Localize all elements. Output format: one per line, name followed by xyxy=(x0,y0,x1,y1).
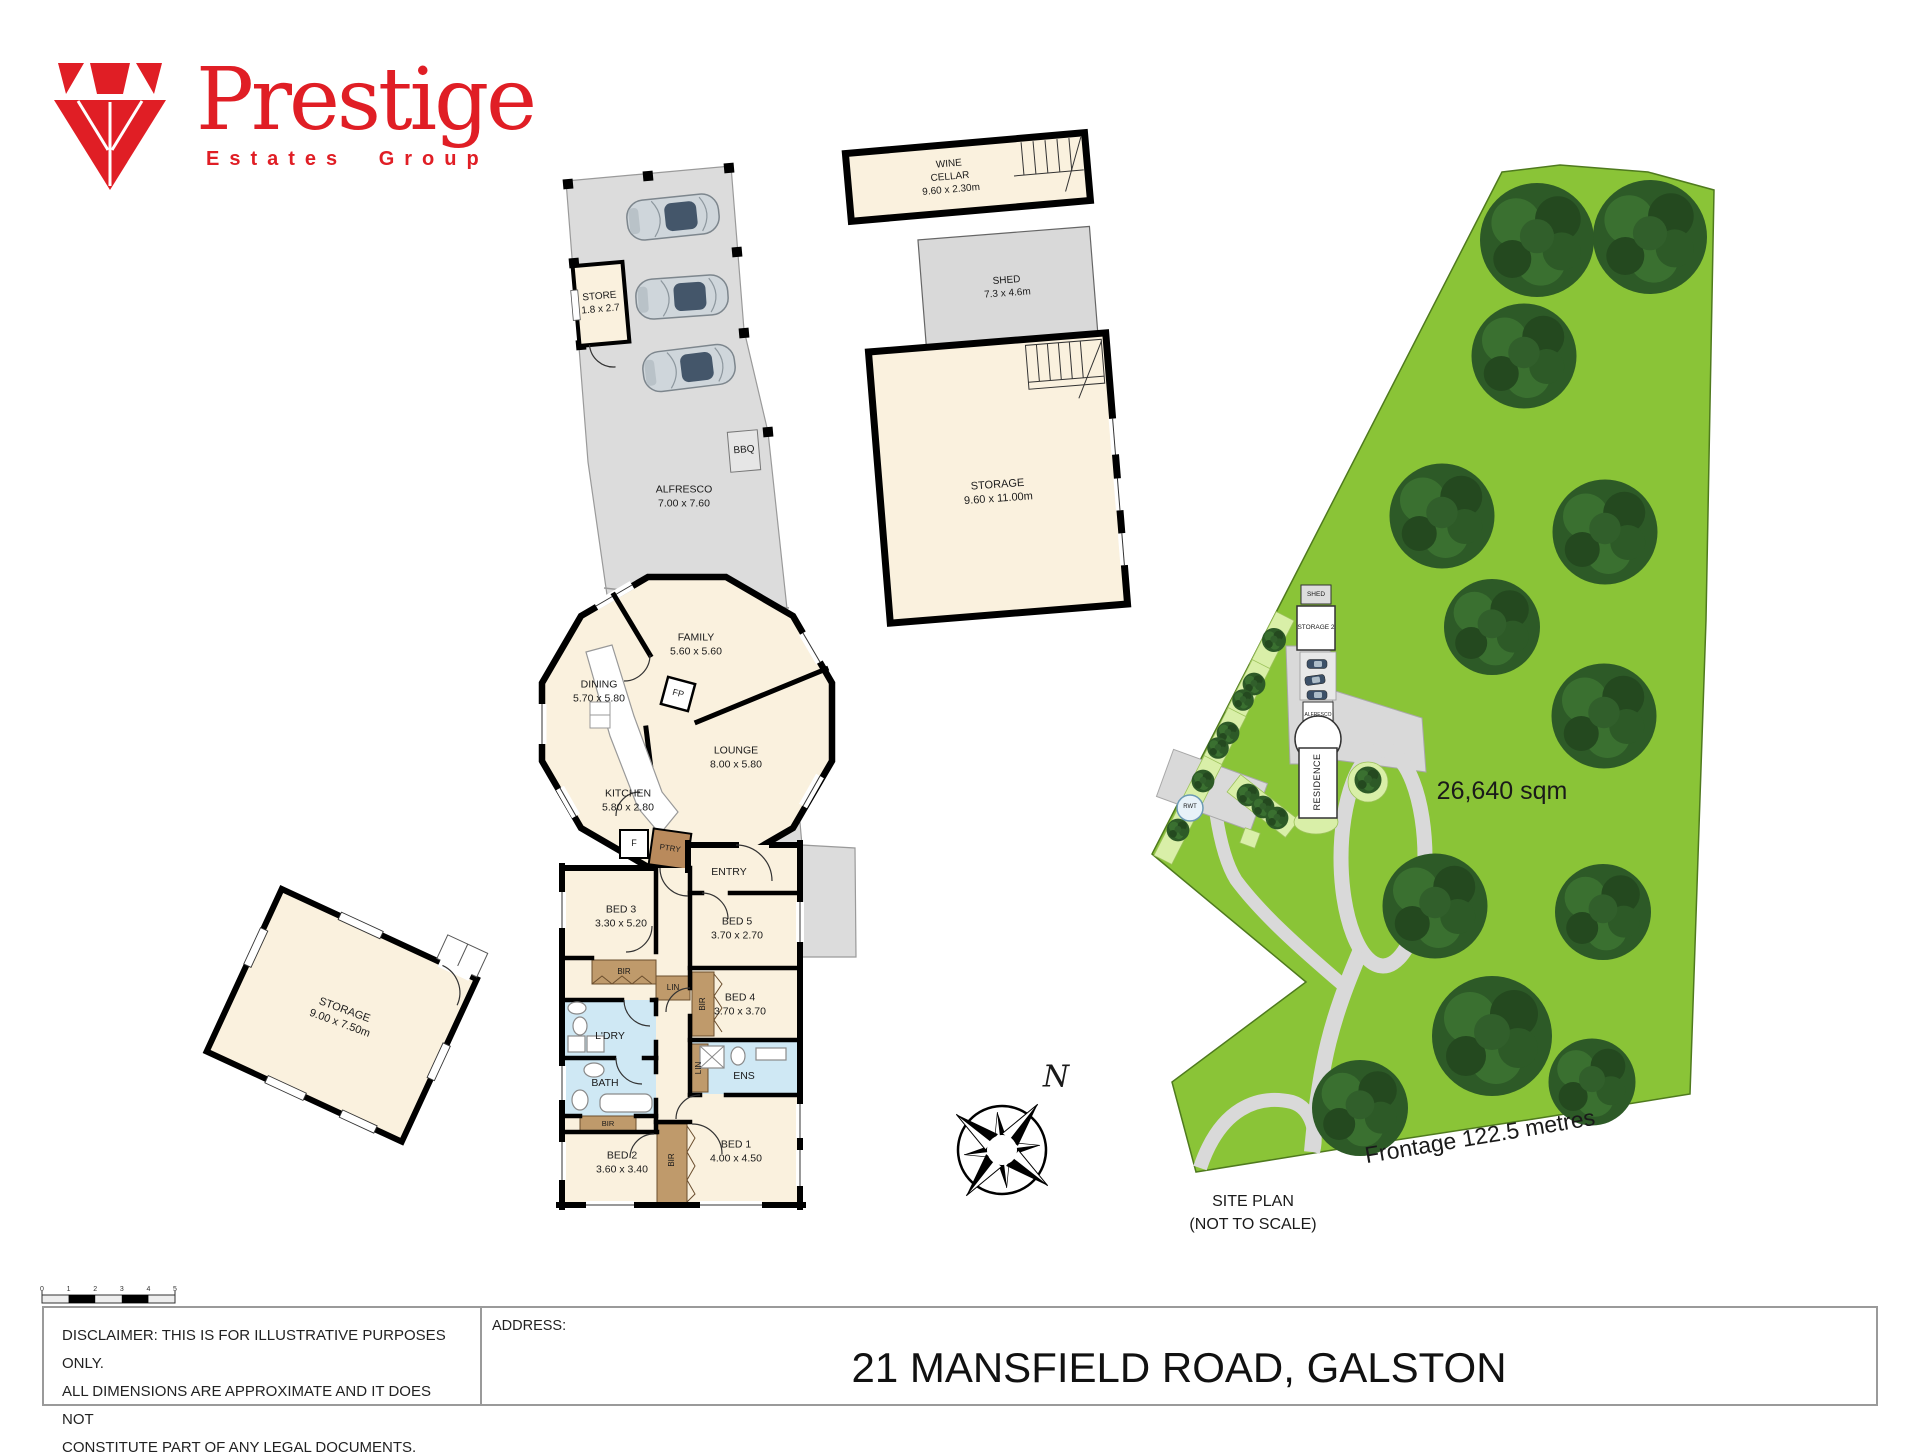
siteplan-shed-label: SHED xyxy=(1307,591,1325,599)
label-bed1: BED 1 4.00 x 4.50 xyxy=(710,1138,762,1165)
label-ensuite: ENS xyxy=(733,1070,755,1084)
caption-line: (NOT TO SCALE) xyxy=(1189,1213,1316,1236)
scalebar-tick: 0 xyxy=(40,1286,44,1293)
room-name: BED 1 xyxy=(710,1138,762,1152)
land-area-label: 26,640 sqm xyxy=(1437,775,1568,808)
label-bed5: BED 5 3.70 x 2.70 xyxy=(711,915,763,942)
label-shed: SHED 7.3 x 4.6m xyxy=(983,272,1031,301)
scalebar-tick: 2 xyxy=(93,1286,97,1293)
disclaimer-line: ALL DIMENSIONS ARE APPROXIMATE AND IT DO… xyxy=(62,1378,462,1434)
room-dims: 3.70 x 3.70 xyxy=(714,1005,766,1019)
room-name: BED 4 xyxy=(714,991,766,1005)
disclaimer-line: CONSTITUTE PART OF ANY LEGAL DOCUMENTS. xyxy=(62,1434,462,1453)
compass-north-label: N xyxy=(1043,1058,1069,1097)
label-wine-cellar: WINE CELLAR 9.60 x 2.30m xyxy=(920,155,981,199)
car-icon xyxy=(635,274,730,320)
label-kitchen: KITCHEN 5.80 x 2.80 xyxy=(602,787,654,814)
siteplan-caption: SITE PLAN (NOT TO SCALE) xyxy=(1189,1190,1316,1236)
room-dims: 7.00 x 7.60 xyxy=(656,497,713,511)
room-dims: 3.70 x 2.70 xyxy=(711,929,763,943)
room-dims: 3.30 x 5.20 xyxy=(595,917,647,931)
room-dims: 5.70 x 5.80 xyxy=(573,692,625,706)
label-lin: LIN xyxy=(694,1062,704,1074)
label-alfresco: ALFRESCO 7.00 x 7.60 xyxy=(656,483,713,510)
label-bir: BIR xyxy=(602,1119,615,1129)
siteplan-residence-label: RESIDENCE xyxy=(1312,753,1324,810)
label-lounge: LOUNGE 8.00 x 5.80 xyxy=(710,744,762,771)
label-bath: BATH xyxy=(591,1077,618,1091)
plan-graphics xyxy=(0,0,1920,1453)
room-name: FAMILY xyxy=(670,631,722,645)
label-storage-upper: STORAGE 9.60 x 11.00m xyxy=(963,475,1034,508)
label-bir: BIR xyxy=(698,997,708,1010)
room-name: BED 3 xyxy=(595,903,647,917)
label-dining: DINING 5.70 x 5.80 xyxy=(573,678,625,705)
label-bir: BIR xyxy=(667,1153,677,1166)
room-name: LOUNGE xyxy=(710,744,762,758)
label-bir: BIR xyxy=(617,967,630,977)
siteplan-alfresco-label: ALFRESCO xyxy=(1305,712,1332,719)
floorplan-page: Prestige Estates Group STORE 1.8 x 2.7 B… xyxy=(0,0,1920,1453)
scalebar-tick: 3 xyxy=(120,1286,124,1293)
caption-line: SITE PLAN xyxy=(1189,1190,1316,1213)
scalebar-tick: 1 xyxy=(67,1286,71,1293)
address-label: ADDRESS: xyxy=(492,1318,566,1334)
brand-name: Prestige xyxy=(196,50,534,150)
label-fridge: F xyxy=(631,838,637,850)
room-dims: 5.80 x 2.80 xyxy=(602,801,654,815)
siteplan-rwt-label: RWT xyxy=(1183,804,1197,812)
living-octagon xyxy=(542,577,832,869)
scalebar-tick: 4 xyxy=(146,1286,150,1293)
scalebar-tick: 5 xyxy=(173,1286,177,1293)
site-parcel xyxy=(1152,165,1714,1172)
siteplan-storage2-label: STORAGE 2 xyxy=(1297,624,1334,632)
label-bbq: BBQ xyxy=(733,443,755,458)
room-name: BED 2 xyxy=(596,1149,648,1163)
label-lin: LIN xyxy=(667,983,679,993)
scale-bar xyxy=(42,1291,175,1303)
room-dims: 8.00 x 5.80 xyxy=(710,758,762,772)
logo-diamond-icon xyxy=(54,63,166,190)
disclaimer-line: DISCLAIMER: THIS IS FOR ILLUSTRATIVE PUR… xyxy=(62,1322,462,1378)
room-name: BED 5 xyxy=(711,915,763,929)
label-bed3: BED 3 3.30 x 5.20 xyxy=(595,903,647,930)
room-dims: 3.60 x 3.40 xyxy=(596,1163,648,1177)
room-name: DINING xyxy=(573,678,625,692)
footer-divider xyxy=(480,1306,482,1406)
disclaimer-text: DISCLAIMER: THIS IS FOR ILLUSTRATIVE PUR… xyxy=(62,1322,462,1453)
label-entry: ENTRY xyxy=(711,866,746,880)
label-laundry: L'DRY xyxy=(595,1030,625,1044)
label-store: STORE 1.8 x 2.7 xyxy=(580,288,620,317)
room-name: ALFRESCO xyxy=(656,483,713,497)
bedroom-wing xyxy=(558,843,804,1209)
brand-subtitle: Estates Group xyxy=(206,148,489,171)
label-family: FAMILY 5.60 x 5.60 xyxy=(670,631,722,658)
label-bed2: BED 2 3.60 x 3.40 xyxy=(596,1149,648,1176)
room-name: KITCHEN xyxy=(602,787,654,801)
room-dims: 4.00 x 4.50 xyxy=(710,1152,762,1166)
room-dims: 5.60 x 5.60 xyxy=(670,645,722,659)
label-bed4: BED 4 3.70 x 3.70 xyxy=(714,991,766,1018)
address-value: 21 MANSFIELD ROAD, GALSTON xyxy=(851,1344,1506,1392)
